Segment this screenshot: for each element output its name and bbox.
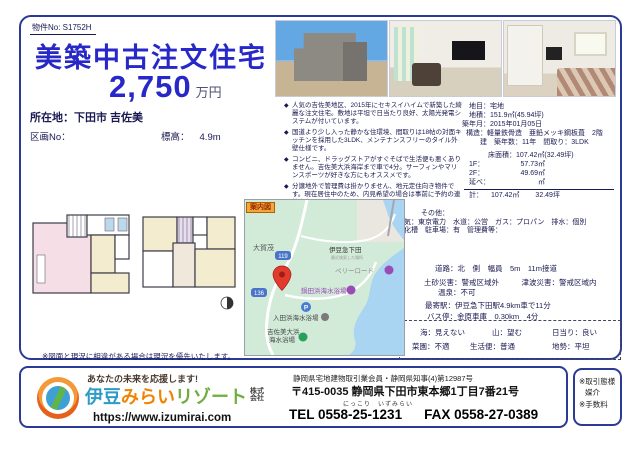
- company-name-izu: 伊豆: [85, 387, 121, 407]
- map-beach3-label-line1: 吉佐美大浜: [267, 327, 300, 336]
- company-logo-icon: [37, 377, 79, 419]
- floor-nobe-label: 延べ：: [469, 178, 495, 187]
- fax-number: FAX 0558-27-0389: [424, 407, 538, 422]
- tv-shape: [546, 47, 562, 61]
- elevation-value: 4.9m: [200, 132, 221, 143]
- access-info: 道路：北 側 幅員 5m 11m接道 土砂災害：警戒区域外 津波災害：警戒区域内…: [397, 264, 629, 321]
- floor-row-1f: 1F：57.73㎡: [469, 160, 622, 169]
- suffix-kabushiki: 株式: [250, 388, 264, 395]
- company-name-suffix: 株式会社: [250, 388, 264, 403]
- suffix-kaisha: 会社: [250, 395, 264, 402]
- guide-map: 案内図 119 136: [244, 199, 405, 356]
- floor-nobe-value: ㎡: [495, 178, 545, 187]
- land-type: 地目：宅地: [469, 102, 622, 111]
- terrain: 地勢：平坦: [552, 341, 590, 352]
- road-info: 道路：北 側 幅員 5m 11m接道: [435, 264, 629, 273]
- svg-text:P: P: [304, 305, 309, 312]
- property-specs: 地目：宅地 地積：151.9㎡(45.94坪) 築年月：2015年01月05日 …: [462, 102, 622, 200]
- sea-view: 海：見えない: [420, 327, 465, 338]
- map-beach1-label: 鍋田浜海水浴場: [301, 286, 347, 295]
- poi-circle-icon: [321, 313, 329, 321]
- floor-row-2f: 2F：49.69㎡: [469, 169, 622, 178]
- feature-bullet: ◆ 国道より少し入った静かな住環境、間取りは18帖の対面キッチンを採用した3LD…: [284, 129, 462, 153]
- feature-bullet-text: 人気の吉佐美地区、2015年にセキスイハイムで新築した綺麗な注文住宅。敷地は平坦…: [292, 102, 462, 126]
- land-area: 地積：151.9㎡(45.94坪): [469, 111, 622, 120]
- location-text: 所在地：下田市 吉佐美: [30, 109, 143, 125]
- nearest-station: 最寄駅：伊豆急下田駅4.9km車で11分: [425, 301, 629, 310]
- floor-plans: [31, 213, 237, 313]
- environment-box: 海：見えない 山：望む 日当り：良い 菜園：不適 生活便：普通 地勢：平坦: [399, 320, 621, 360]
- feature-bullet: ◆ 人気の吉佐美地区、2015年にセキスイハイムで新築した綺麗な注文住宅。敷地は…: [284, 102, 462, 126]
- other-info: その他： 電気：東京電力 水道：公営 ガス：プロパン 排水：個別 浄化槽 駐車場…: [397, 210, 627, 236]
- map-station-label: 伊豆急下田: [329, 245, 362, 254]
- property-number: 物件No: S1752H: [30, 21, 96, 35]
- photo-bedroom: [503, 20, 616, 97]
- floor-row-total: 計：107.42㎡32.49坪: [469, 191, 622, 200]
- sunlight: 日当り：良い: [552, 327, 597, 338]
- total-label: 計：: [469, 192, 483, 199]
- photo-exterior: [275, 20, 388, 97]
- floor-area-total: 床面積：107.42㎡(32.49坪): [488, 151, 622, 160]
- total-value: 107.42㎡: [491, 192, 519, 199]
- map-beach3-label-line2: 海水浴場: [269, 335, 296, 344]
- company-name: 伊豆みらいリゾート株式会社: [85, 383, 264, 409]
- floor-area-divider: [464, 189, 614, 190]
- floor-2f-value: 49.69㎡: [495, 169, 545, 178]
- feature-bullet-text: 国道より少し入った静かな住環境、間取りは18帖の対面キッチンを採用した3LDK、…: [292, 129, 462, 153]
- parking-icon: P: [301, 302, 311, 312]
- diamond-bullet-icon: ◆: [284, 156, 292, 180]
- compass-icon: [221, 297, 233, 309]
- bed-shape: [557, 68, 615, 97]
- map-perry-road-label: ペリーロード: [335, 267, 374, 275]
- elevation-label: 標高：: [161, 132, 190, 143]
- structure-line2: 建 築年数：11年 間取り：3LDK: [480, 138, 622, 147]
- feature-bullet: ◆ コンビニ、ドラッグストアがすぐそばで生活便も悪くありません。吉佐美大浜海岸ま…: [284, 156, 462, 180]
- company-address: 〒415-0035 静岡県下田市東本郷1丁目7番21号: [291, 383, 519, 399]
- floor-row-nobe: 延べ：㎡: [469, 178, 622, 187]
- sofa-shape: [412, 63, 441, 86]
- diamond-bullet-icon: ◆: [284, 102, 292, 126]
- window-shape: [574, 32, 607, 56]
- company-url: https://www.izumirai.com: [93, 412, 231, 424]
- structure-line1: 構造：軽量鉄骨造 亜鉛メッキ鋼板葺 2階: [466, 129, 622, 138]
- garden-suitability: 菜園：不適: [412, 341, 450, 352]
- price-unit: 万円: [196, 85, 222, 100]
- route-136-badge: 136: [251, 288, 267, 297]
- tel-number: TEL 0558-25-1231: [289, 407, 402, 422]
- map-area-label: 大賀茂: [253, 243, 274, 252]
- beach-poi-icon: [347, 286, 356, 295]
- living-convenience: 生活便：普通: [470, 341, 515, 352]
- elevation: 標高：4.9m: [161, 129, 221, 143]
- company-name-resort: リゾート: [175, 387, 247, 407]
- price-value: 2,750: [109, 69, 192, 104]
- agency-panel: あなたの未来を応援します! 伊豆みらいリゾート株式会社 https://www.…: [19, 366, 568, 428]
- poi-circle-icon: [299, 333, 308, 342]
- diamond-bullet-icon: ◆: [284, 129, 292, 153]
- property-flyer: 物件No: S1752H 美築中古注文住宅 2,750万円 所在地：下田市 吉佐…: [0, 0, 640, 452]
- main-listing-panel: 物件No: S1752H 美築中古注文住宅 2,750万円 所在地：下田市 吉佐…: [19, 15, 622, 360]
- utilities-line1: 電気：東京電力 水道：公営 ガス：プロパン 排水：個別: [397, 219, 627, 228]
- floor-area-table: 床面積：107.42㎡(32.49坪) 1F：57.73㎡ 2F：49.69㎡ …: [462, 151, 622, 200]
- block-number-label: 区画No：: [30, 132, 71, 143]
- company-name-mirai: みらい: [121, 387, 175, 407]
- transaction-note-box: ※取引態様 媒介 ※手数料: [573, 368, 622, 426]
- feature-bullet-text: コンビニ、ドラッグストアがすぐそばで生活便も悪くありません。吉佐美大浜海岸まで車…: [292, 156, 462, 180]
- built-date: 築年月：2015年01月05日: [462, 120, 622, 129]
- utilities-line2: 浄化槽 駐車場：有 管理費等：: [397, 227, 627, 236]
- other-heading: その他：: [421, 210, 627, 219]
- svg-text:119: 119: [278, 254, 288, 260]
- floor-2f-label: 2F：: [469, 169, 495, 178]
- map-badge: 案内図: [246, 202, 275, 213]
- price: 2,750万円: [109, 69, 222, 105]
- photo-strip: [275, 20, 616, 97]
- route-119-badge: 119: [275, 251, 291, 260]
- feature-bullets: ◆ 人気の吉佐美地区、2015年にセキスイハイムで新築した綺麗な注文住宅。敷地は…: [284, 102, 462, 210]
- map-canvas: 119 136 大賀茂 伊豆急下田 最近検索した場所 ペリーロード 鍋田浜海水浴…: [245, 200, 404, 355]
- photo-living-room: [389, 20, 502, 97]
- poi-circle-icon: [385, 266, 394, 275]
- fee-label: ※手数料: [579, 399, 608, 410]
- transaction-type-value: 媒介: [585, 387, 600, 398]
- svg-text:136: 136: [254, 291, 265, 297]
- house-wing-shape: [343, 42, 367, 81]
- floor-plan-2f: [143, 217, 235, 287]
- block-elevation-row: 区画No： 標高：4.9m: [30, 129, 270, 143]
- transaction-type-label: ※取引態様: [579, 376, 615, 387]
- floor-1f-label: 1F：: [469, 160, 495, 169]
- map-beach2-label: 入田浜海水浴場: [273, 313, 319, 322]
- phone-numbers: TEL 0558-25-1231FAX 0558-27-0389: [289, 407, 538, 422]
- hazard-info: 土砂災害：警戒区域外 津波災害：警戒区域内: [424, 278, 629, 287]
- floor-1f-value: 57.73㎡: [495, 160, 545, 169]
- mountain-view: 山：望む: [492, 327, 522, 338]
- tv-shape: [452, 41, 485, 61]
- map-station-sub: 最近検索した場所: [331, 254, 363, 260]
- total-tsubo: 32.49坪: [535, 192, 560, 199]
- closet-shape: [507, 25, 543, 87]
- onsen-info: 温泉：不可: [438, 288, 629, 297]
- floor-plan-note: ※図面と現況に相違がある場合は現況を優先いたします。: [42, 351, 235, 362]
